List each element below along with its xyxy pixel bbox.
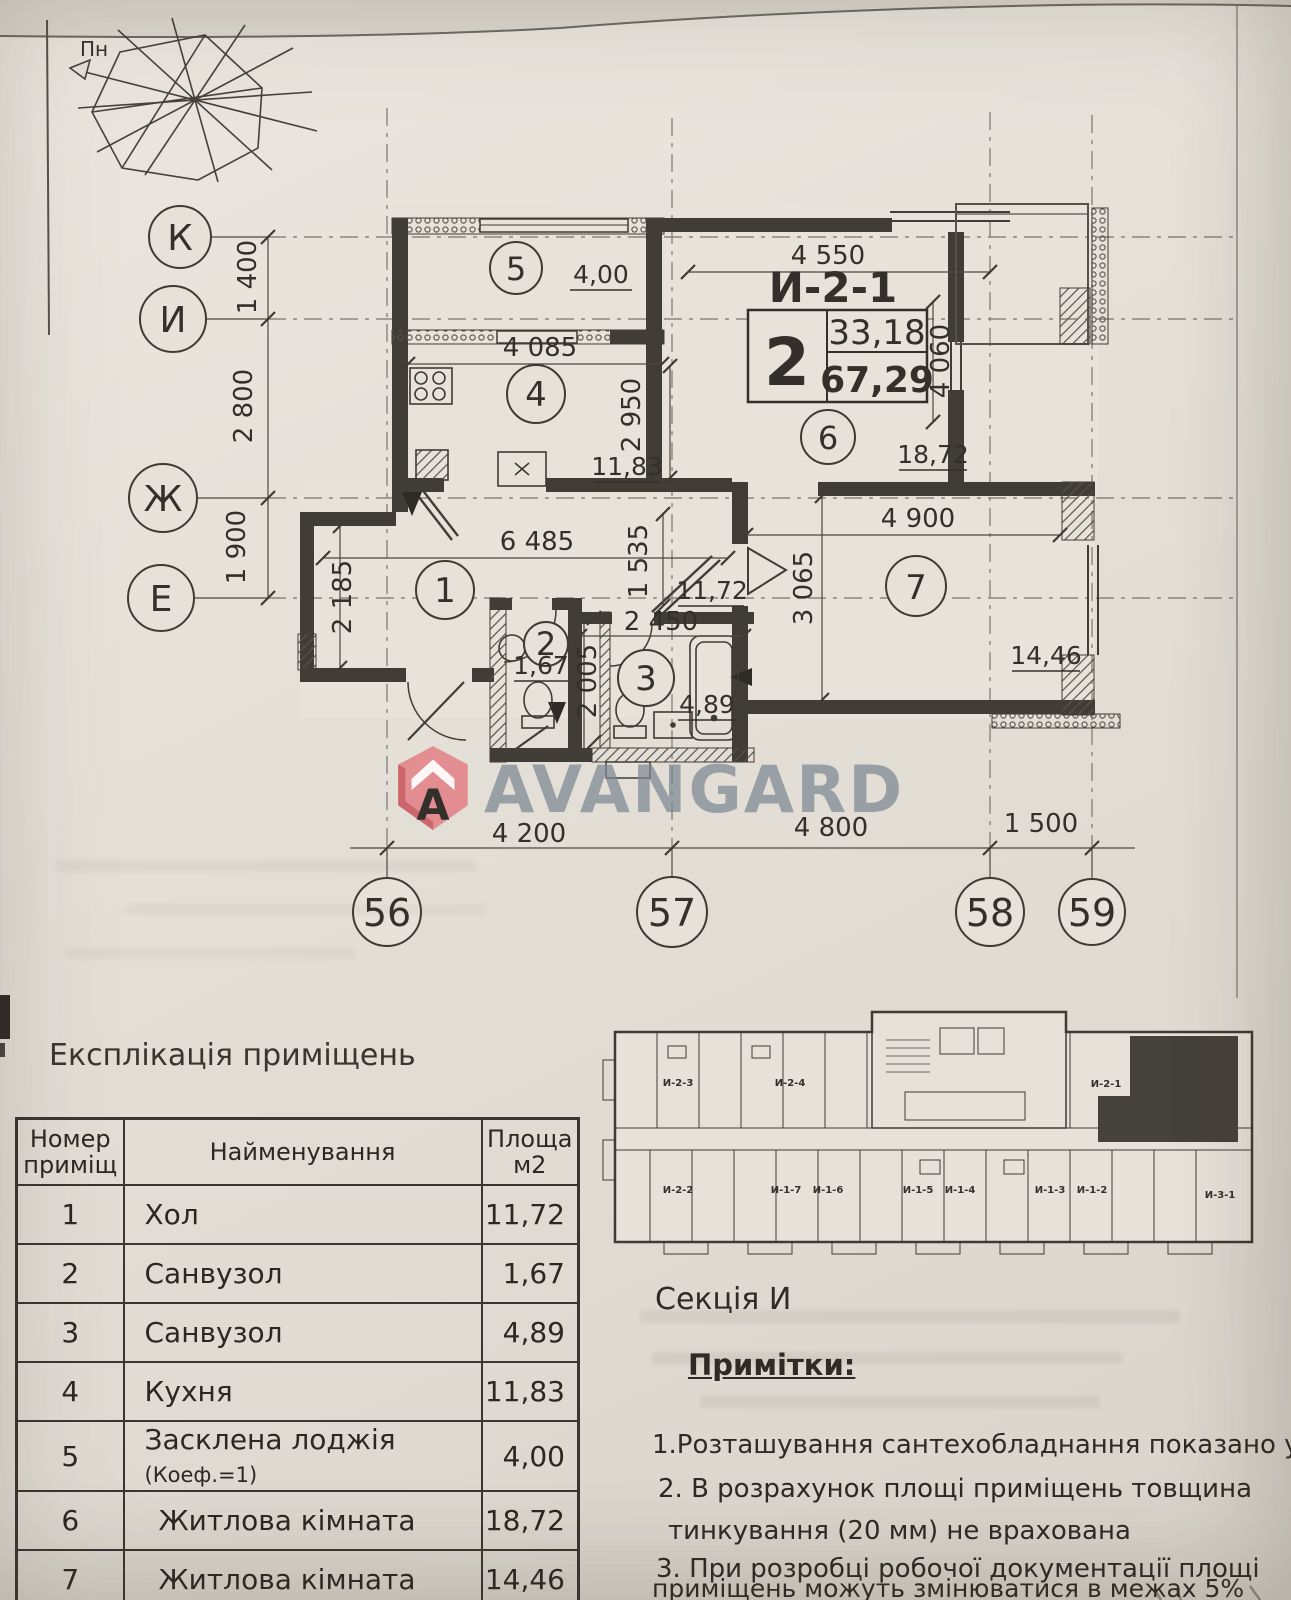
dim-axis-i-zh: 2 800 (229, 369, 259, 443)
notes-title: Примітки: (688, 1348, 855, 1382)
room-area-4: 11,83 (591, 452, 663, 481)
logo-badge-letter: A (416, 781, 450, 831)
table-row: 3 Санвузол 4,89 (17, 1303, 579, 1362)
explication-table: Номер приміщ Найменування Площа м2 1 Хол… (15, 1117, 580, 1600)
room-num: 1 (17, 1185, 124, 1244)
room-area: 4,00 (482, 1421, 579, 1491)
table-row: 5 Засклена лоджія (Коеф.=1) 4,00 (17, 1421, 579, 1491)
note-line: тинкування (20 мм) не врахована (668, 1516, 1131, 1546)
room-area-1: 11,72 (676, 576, 748, 605)
room-area: 14,46 (482, 1550, 579, 1600)
room-name: Житлова кімната (159, 1504, 416, 1537)
room-name: Кухня (145, 1375, 233, 1408)
dim-axis-zh-e: 1 900 (222, 510, 252, 584)
dim-axis-58-59: 1 500 (1004, 809, 1078, 839)
axis-label-58: 58 (966, 891, 1014, 935)
table-row: 2 Санвузол 1,67 (17, 1244, 579, 1303)
axis-label-i: И (160, 300, 187, 341)
room-name: Санвузол (145, 1316, 283, 1349)
compass-rose: Пн (70, 18, 317, 182)
dim-bath-width: 2 450 (624, 607, 698, 637)
bleedthrough-text (700, 1396, 1100, 1408)
kitchen-counter-icon (416, 450, 448, 480)
table-row: 6 Житлова кімната 18,72 (17, 1491, 579, 1550)
table-title: Експлікація приміщень (15, 1038, 579, 1073)
note-line: 1.Розташування сантехобладнання показано… (652, 1430, 1291, 1460)
dim-room7-width: 4 900 (881, 504, 955, 534)
section-key-plan: И-2-3 И-2-4 И-2-1 И-2-2 И-1-7 И-1-6 И-1-… (603, 1012, 1252, 1254)
room-name-note: (Коеф.=1) (145, 1463, 258, 1487)
bleedthrough-text (66, 948, 356, 959)
avangard-logo-icon: A (392, 742, 474, 832)
room-num: 5 (17, 1421, 124, 1491)
dim-bath-height: 2 005 (573, 644, 603, 718)
note-line: приміщень можуть змінюватися в межах 5% (652, 1574, 1244, 1600)
apartment-code: И-2-1 (769, 263, 897, 312)
room-area: 11,83 (482, 1362, 579, 1421)
room-area: 18,72 (482, 1491, 579, 1550)
room-area-6: 18,72 (897, 440, 969, 469)
unit-label: И-1-6 (813, 1185, 844, 1196)
unit-label: И-1-2 (1077, 1185, 1108, 1196)
unit-label: И-2-1 (1091, 1079, 1122, 1090)
axis-label-k: К (167, 218, 193, 259)
unit-label: И-2-4 (775, 1078, 806, 1089)
avangard-watermark: A AVANGARD (392, 742, 904, 832)
room-num: 2 (17, 1244, 124, 1303)
dim-axis-k-i: 1 400 (233, 240, 263, 314)
dim-hall-width: 6 485 (500, 527, 574, 557)
apartment-total-area: 67,29 (820, 360, 934, 401)
axis-label-59: 59 (1068, 891, 1116, 935)
room-number-5: 5 (506, 250, 526, 288)
bleedthrough-text (126, 904, 486, 915)
room-name: Житлова кімната (159, 1563, 416, 1596)
unit-label: И-1-5 (903, 1185, 934, 1196)
table-row: 1 Хол 11,72 (17, 1185, 579, 1244)
room-area: 1,67 (482, 1244, 579, 1303)
unit-label: И-3-1 (1205, 1190, 1236, 1201)
unit-label: И-2-2 (663, 1185, 694, 1196)
room-area-3: 4,89 (679, 690, 735, 719)
room-number-3: 3 (635, 659, 657, 699)
room-num: 7 (17, 1550, 124, 1600)
unit-label: И-1-3 (1035, 1185, 1066, 1196)
room-area: 11,72 (482, 1185, 579, 1244)
bleedthrough-text (56, 860, 476, 872)
section-label: Секція И (655, 1282, 791, 1317)
note-line: 2. В розрахунок площі приміщень товщина (658, 1474, 1252, 1504)
axis-label-57: 57 (648, 891, 696, 935)
dim-kitchen-height: 2 950 (617, 378, 647, 452)
col-header-name: Найменування (124, 1119, 482, 1186)
room-area-2: 1,67 (513, 651, 569, 680)
unit-label: И-2-3 (663, 1078, 694, 1089)
room-name: Хол (145, 1198, 199, 1231)
table-row: 7 Житлова кімната 14,46 (17, 1550, 579, 1600)
explication-block: Експлікація приміщень Номер приміщ Найме… (15, 1038, 579, 1600)
dim-hall-height: 1 535 (624, 524, 654, 598)
unit-label: И-1-4 (945, 1185, 976, 1196)
dim-kitchen-width: 4 085 (503, 333, 577, 363)
room-num: 6 (17, 1491, 124, 1550)
room-area-5: 4,00 (573, 260, 629, 289)
room-num: 4 (17, 1362, 124, 1421)
room-number-6: 6 (818, 419, 838, 457)
room-name: Засклена лоджія (145, 1423, 396, 1456)
col-header-number: Номер приміщ (17, 1119, 124, 1186)
room-number-4: 4 (525, 375, 547, 415)
dim-room7-height: 3 065 (789, 551, 819, 625)
compass-north-label: Пн (80, 37, 108, 61)
apartment-rooms-count: 2 (764, 324, 810, 401)
room-number-1: 1 (434, 571, 456, 611)
dim-hall-left-height: 2 185 (328, 560, 358, 634)
col-header-area: Площа м2 (482, 1119, 579, 1186)
table-header-row: Номер приміщ Найменування Площа м2 (17, 1119, 579, 1186)
apartment-living-area: 33,18 (828, 313, 925, 353)
room-number-7: 7 (905, 568, 927, 608)
unit-label: И-1-7 (771, 1185, 802, 1196)
axis-label-e: Е (150, 579, 173, 620)
table-row: 4 Кухня 11,83 (17, 1362, 579, 1421)
room-num: 3 (17, 1303, 124, 1362)
scanned-floorplan-page: Пн (0, 0, 1291, 1600)
room-area-7: 14,46 (1010, 641, 1082, 670)
room-area: 4,89 (482, 1303, 579, 1362)
logo-wordmark: AVANGARD (484, 758, 904, 823)
room-name: Санвузол (145, 1257, 283, 1290)
axis-label-zh: Ж (144, 479, 183, 520)
